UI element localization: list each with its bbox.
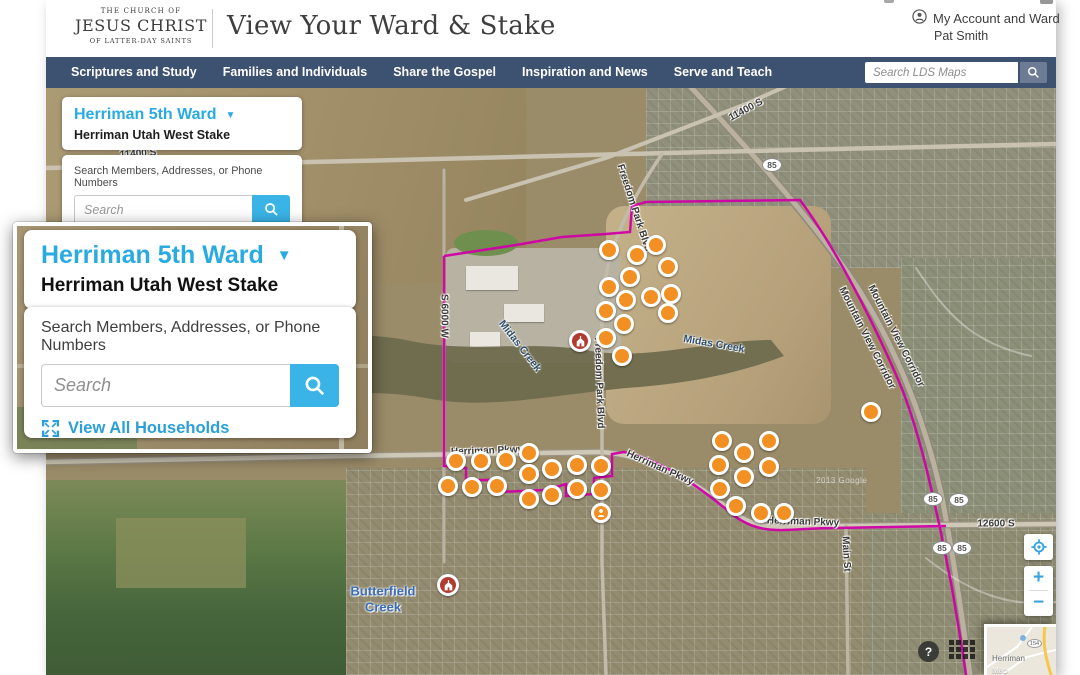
household-marker[interactable]: [759, 457, 779, 477]
chevron-down-icon: ▼: [226, 110, 236, 121]
geolocate-button[interactable]: [1024, 534, 1053, 560]
household-marker[interactable]: [627, 245, 647, 265]
nav-item-families-and-individuals[interactable]: Families and Individuals: [210, 57, 380, 88]
nav-item-scriptures-and-study[interactable]: Scriptures and Study: [58, 57, 210, 88]
member-household-marker[interactable]: [591, 503, 611, 523]
stake-name: Herriman Utah West Stake: [74, 128, 290, 142]
header-divider: [212, 9, 213, 48]
minimap-route-shield: 154: [1027, 639, 1042, 648]
ward-selector[interactable]: Herriman 5th Ward ▼: [41, 241, 339, 270]
household-marker[interactable]: [612, 346, 632, 366]
household-marker[interactable]: [487, 476, 507, 496]
member-search-button[interactable]: [290, 364, 339, 407]
household-marker[interactable]: [709, 455, 729, 475]
household-marker[interactable]: [710, 479, 730, 499]
household-marker[interactable]: [658, 257, 678, 277]
view-all-households-link[interactable]: View All Households: [41, 419, 339, 438]
main-nav: Scriptures and StudyFamilies and Individ…: [46, 57, 1056, 88]
household-marker[interactable]: [542, 485, 562, 505]
account-user: Pat Smith: [934, 29, 1060, 43]
expand-icon: [41, 419, 60, 438]
household-marker[interactable]: [599, 240, 619, 260]
household-marker[interactable]: [438, 476, 458, 496]
household-marker[interactable]: [712, 431, 732, 451]
ward-name: Herriman 5th Ward: [41, 241, 264, 270]
search-icon: [1027, 66, 1040, 79]
site-header: THE CHURCH OF JESUS CHRIST OF LATTER-DAY…: [46, 0, 1056, 57]
household-marker[interactable]: [591, 456, 611, 476]
household-marker[interactable]: [734, 443, 754, 463]
household-marker[interactable]: [462, 477, 482, 497]
zoom-out-button[interactable]: −: [1024, 591, 1053, 615]
household-marker[interactable]: [759, 431, 779, 451]
account-menu[interactable]: My Account and Ward Pat Smith: [912, 9, 1060, 43]
household-marker[interactable]: [591, 480, 611, 500]
chevron-down-icon: ▼: [277, 247, 292, 264]
household-marker[interactable]: [661, 284, 681, 304]
account-icon: [912, 9, 927, 27]
household-marker[interactable]: [596, 328, 616, 348]
member-search-label: Search Members, Addresses, or Phone Numb…: [74, 165, 290, 189]
zoom-in-button[interactable]: +: [1024, 566, 1053, 590]
household-marker[interactable]: [542, 459, 562, 479]
meetinghouse-icon: [442, 579, 455, 592]
zoom-control: + −: [1024, 566, 1053, 616]
search-icon: [264, 202, 279, 217]
household-marker[interactable]: [646, 235, 666, 255]
household-marker[interactable]: [658, 303, 678, 323]
household-marker[interactable]: [726, 496, 746, 516]
church-logo[interactable]: THE CHURCH OF JESUS CHRIST OF LATTER-DAY…: [70, 7, 212, 45]
household-marker[interactable]: [519, 443, 539, 463]
site-search-button[interactable]: [1020, 62, 1047, 83]
household-marker[interactable]: [774, 503, 794, 523]
household-marker[interactable]: [614, 314, 634, 334]
zoomed-panel-callout: Herriman 5th Ward ▼ Herriman Utah West S…: [13, 222, 372, 453]
meetinghouse-icon: [574, 335, 587, 348]
household-marker[interactable]: [567, 455, 587, 475]
meetinghouse-marker[interactable]: [437, 574, 459, 596]
overview-minimap[interactable]: 154 Herriman Map: [984, 624, 1056, 675]
household-marker[interactable]: [616, 290, 636, 310]
logo-line: OF LATTER-DAY SAINTS: [70, 37, 212, 45]
logo-line: JESUS CHRIST: [70, 16, 212, 35]
account-label: My Account and Ward: [933, 11, 1060, 26]
household-marker[interactable]: [446, 451, 466, 471]
member-search-button[interactable]: [252, 195, 290, 224]
help-button[interactable]: ?: [918, 641, 939, 662]
geolocate-icon: [1030, 538, 1048, 556]
logo-line: THE CHURCH OF: [70, 7, 212, 15]
household-marker[interactable]: [567, 479, 587, 499]
site-search-input[interactable]: [865, 62, 1018, 83]
cutoff-toolbar-fragment: [1040, 0, 1053, 4]
cutoff-toolbar-fragment: [884, 0, 894, 3]
member-search-input[interactable]: [41, 364, 290, 407]
ward-title-card: Herriman 5th Ward ▼ Herriman Utah West S…: [62, 97, 302, 150]
household-marker[interactable]: [471, 451, 491, 471]
household-marker[interactable]: [641, 287, 661, 307]
household-marker[interactable]: [734, 467, 754, 487]
stake-name: Herriman Utah West Stake: [41, 275, 339, 297]
nav-item-inspiration-and-news[interactable]: Inspiration and News: [509, 57, 661, 88]
household-marker[interactable]: [519, 489, 539, 509]
view-all-households-label: View All Households: [68, 419, 229, 438]
minimap-caption: Map: [992, 666, 1008, 675]
page-title: View Your Ward & Stake: [227, 11, 556, 41]
member-search-card-zoomed: Search Members, Addresses, or Phone Numb…: [24, 307, 356, 438]
meetinghouse-marker[interactable]: [569, 330, 591, 352]
nav-item-serve-and-teach[interactable]: Serve and Teach: [661, 57, 785, 88]
household-marker[interactable]: [519, 464, 539, 484]
household-marker[interactable]: [596, 301, 616, 321]
household-marker[interactable]: [861, 402, 881, 422]
person-icon: [595, 507, 607, 519]
minimap-place-label: Herriman: [992, 654, 1025, 663]
member-search-input[interactable]: [74, 195, 252, 224]
search-icon: [304, 375, 326, 397]
household-marker[interactable]: [751, 503, 771, 523]
ward-selector[interactable]: Herriman 5th Ward ▼: [74, 106, 290, 124]
nav-item-share-the-gospel[interactable]: Share the Gospel: [380, 57, 509, 88]
ward-name: Herriman 5th Ward: [74, 106, 217, 124]
household-marker[interactable]: [599, 277, 619, 297]
household-marker[interactable]: [620, 267, 640, 287]
ward-title-card-zoomed: Herriman 5th Ward ▼ Herriman Utah West S…: [24, 230, 356, 309]
household-marker[interactable]: [496, 450, 516, 470]
site-search: [865, 62, 1047, 83]
member-search-label: Search Members, Addresses, or Phone Numb…: [41, 319, 339, 355]
tiles-grid-icon[interactable]: [949, 640, 977, 667]
